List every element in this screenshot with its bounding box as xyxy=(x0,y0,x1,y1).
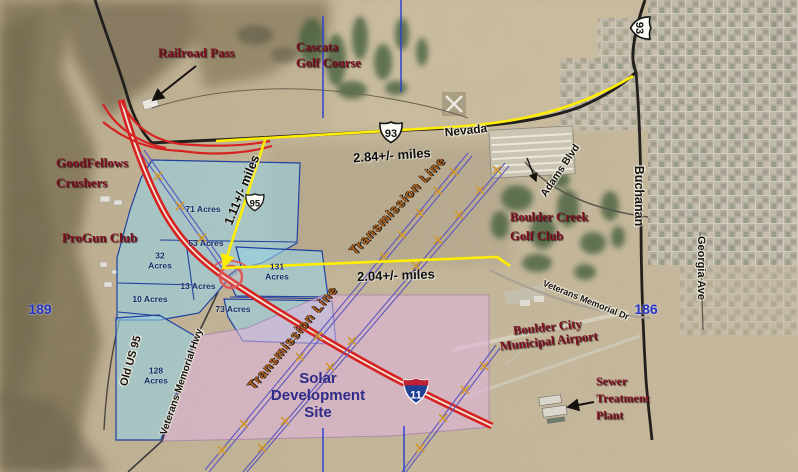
solar-site-label: Solar Development Site xyxy=(271,371,365,421)
railroad-pass-label: Railroad Pass xyxy=(158,45,235,61)
interstate-11-shield-number: 11 xyxy=(410,390,422,402)
goodfellows-label: GoodFellows Crushers xyxy=(56,153,128,193)
solar-line3: Site xyxy=(271,404,365,421)
goodfellows-line2: Crushers xyxy=(56,173,128,193)
parcel-73-label: 73 Acres xyxy=(215,305,250,315)
cascata-line2: Golf Course xyxy=(296,56,361,72)
parcel-13-label: 13 Acres xyxy=(180,282,215,292)
us-93-shield-number: 93 xyxy=(385,128,397,140)
cascata-line1: Cascata xyxy=(296,40,361,56)
sewer-plant-label: Sewer Treatment Plant xyxy=(596,373,650,423)
cascata-golf-label: Cascata Golf Course xyxy=(296,40,361,71)
us-93-shield-north-number: 93 xyxy=(633,22,645,34)
boulder-creek-label: Boulder Creek Golf Club xyxy=(510,208,588,247)
georgia-ave-label: Georgia Ave xyxy=(695,236,707,300)
solar-site-map: 93 93 95 11 Railroad Pass Cascata Golf C… xyxy=(0,0,798,472)
sewer-line3: Plant xyxy=(596,407,650,424)
parcel-53-label: 53 Acres xyxy=(188,239,223,249)
parcel-10-label: 10 Acres xyxy=(132,295,167,305)
parcel-131-line2: Acres xyxy=(265,272,289,282)
section-number-189: 189 xyxy=(28,302,51,318)
parcel-71-label: 71 Acres xyxy=(185,205,220,215)
boulder-creek-line2: Golf Club xyxy=(510,227,588,246)
parcel-128-label: 128 Acres xyxy=(144,366,168,385)
parcel-128-line2: Acres xyxy=(144,376,168,386)
distance-204-label: 2.04+/- miles xyxy=(357,267,435,284)
section-number-186: 186 xyxy=(634,302,657,318)
us-95-shield-number: 95 xyxy=(250,198,260,209)
solar-line1: Solar xyxy=(271,371,365,388)
goodfellows-line1: GoodFellows xyxy=(56,153,128,173)
solar-line2: Development xyxy=(271,388,365,405)
parcel-131-label: 131 Acres xyxy=(265,262,289,281)
sewer-line2: Treatment xyxy=(596,390,650,407)
buchanan-label: Buchanan xyxy=(632,166,646,226)
parcel-32-label: 32 Acres xyxy=(148,251,172,270)
sewer-line1: Sewer xyxy=(596,373,650,390)
progun-club-label: ProGun Club xyxy=(62,230,137,246)
parcel-32-line2: Acres xyxy=(148,261,172,271)
boulder-creek-line1: Boulder Creek xyxy=(510,208,588,227)
